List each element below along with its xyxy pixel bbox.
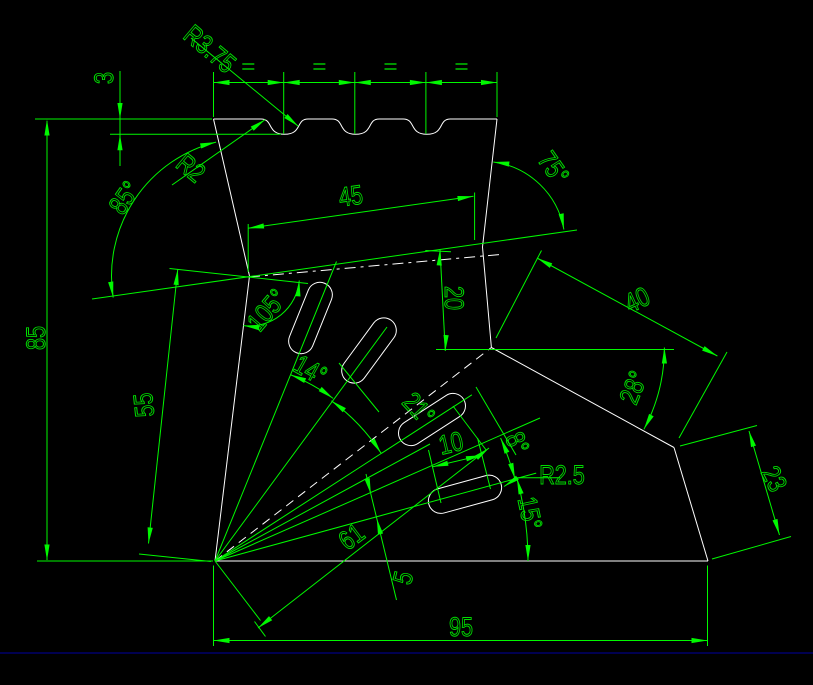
svg-text:95: 95 <box>449 613 473 643</box>
svg-text:20: 20 <box>438 286 468 310</box>
svg-text:85: 85 <box>22 326 52 350</box>
svg-text:45: 45 <box>337 180 365 213</box>
svg-text:R2.5: R2.5 <box>539 461 585 491</box>
svg-text:3: 3 <box>90 72 120 84</box>
svg-text:55: 55 <box>129 391 161 418</box>
